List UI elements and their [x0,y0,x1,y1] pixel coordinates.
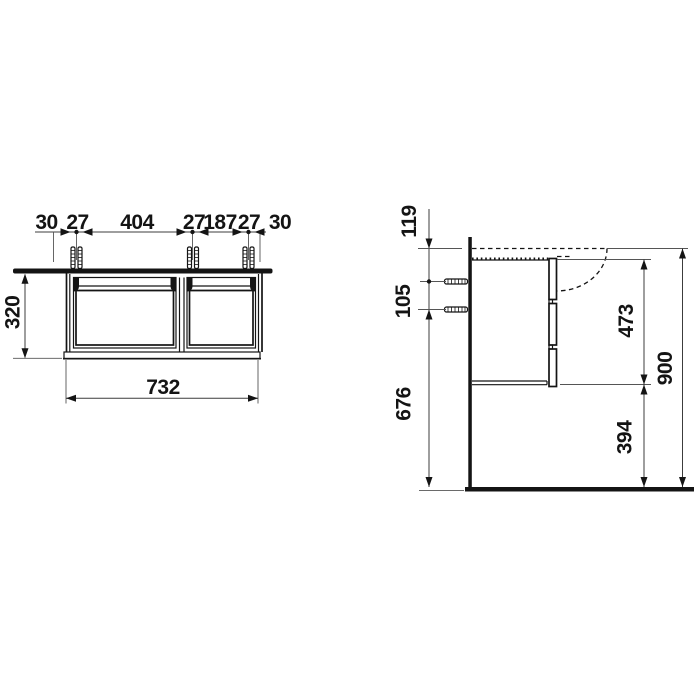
dim-label-394: 394 [614,420,637,454]
front-width-dimension: 732 [66,360,258,404]
right-drawer-bracket-right [250,278,256,292]
front-height-dimension: 320 [2,274,63,359]
dim-label-900: 900 [654,352,677,386]
floor-section [465,487,694,492]
right-drawer-front [190,291,254,346]
left-drawer-front [76,291,174,346]
washbasin-hidden-outline [472,249,607,292]
wall-section [468,237,472,491]
right-drawer-bracket-left [187,278,193,292]
vanity-dimension-drawing: 30 27 404 27 187 27 30 320 732 [0,0,700,700]
dim-label-473: 473 [615,304,638,338]
front-view: 30 27 404 27 187 27 30 320 732 [2,211,292,404]
left-drawer-bracket-right [171,278,177,292]
side-view: 119 105 676 473 394 900 [392,205,694,491]
left-drawer-bracket-left [74,278,80,292]
dim-label-320: 320 [2,296,25,330]
dim-label-27-mid: 27 [183,211,205,234]
dim-label-732: 732 [146,376,180,399]
dim-label-404: 404 [120,211,154,234]
dim-label-30-left: 30 [35,211,57,234]
dim-label-27-right: 27 [238,211,260,234]
side-left-dimension-chain: 119 105 676 [392,205,464,490]
dim-label-676: 676 [393,387,416,421]
fixing-screw-symbol [188,247,199,269]
dim-label-30-right: 30 [269,211,291,234]
fixing-screw-symbol [445,307,468,312]
plinth [64,352,260,359]
technical-drawing-page: 30 27 404 27 187 27 30 320 732 [0,0,700,700]
drawer-front-profile [549,259,557,387]
right-drawer [187,278,256,349]
fixing-screw-symbol [445,279,468,284]
dim-label-119: 119 [398,205,421,237]
side-inner-dimension-chain: 473 394 [557,260,651,488]
left-drawer [74,278,177,349]
dim-label-27-left: 27 [66,211,88,234]
fixing-screws-front [71,247,254,269]
washbasin-slab [13,269,273,274]
cabinet-body-side [472,260,549,385]
dim-label-187: 187 [203,211,237,234]
fixing-screws-side [445,279,468,312]
dim-label-105: 105 [392,284,415,318]
